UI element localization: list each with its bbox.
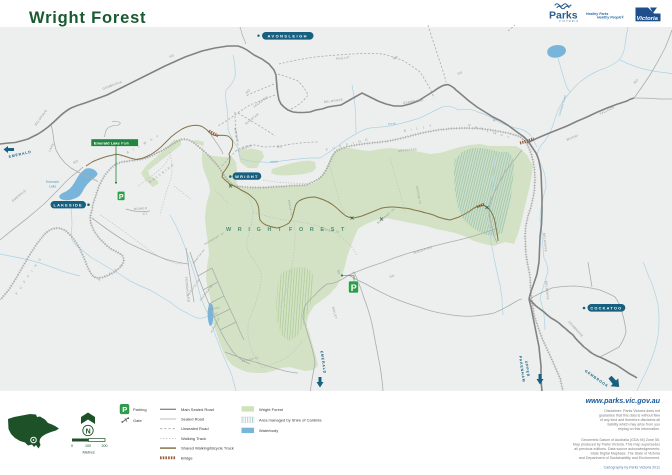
svg-text:P: P (119, 194, 124, 201)
svg-text:Unsealed Road: Unsealed Road (181, 426, 209, 431)
svg-text:State Digital Mapbase. The Sta: State Digital Mapbase. The State of Vict… (590, 452, 660, 456)
svg-text:Area managed by Shire of Cardi: Area managed by Shire of Cardinia (259, 418, 322, 423)
svg-text:0: 0 (71, 444, 73, 448)
svg-text:BOWER: BOWER (134, 206, 148, 211)
svg-text:WRIGHT: WRIGHT (235, 174, 259, 179)
svg-text:liability which may arise from: liability which may arise from you (607, 423, 660, 427)
svg-text:VICTORIA: VICTORIA (559, 20, 579, 23)
svg-text:Gate: Gate (133, 418, 142, 423)
svg-text:Cartography by Parks Victoria: Cartography by Parks Victoria 2011 (604, 466, 660, 470)
svg-text:Bridge: Bridge (181, 455, 193, 460)
svg-text:Lake: Lake (49, 185, 56, 189)
svg-text:Map produced by Parks Victoria: Map produced by Parks Victoria. This map… (573, 443, 660, 447)
svg-text:guarantee that this data is wi: guarantee that this data is without flaw (599, 414, 661, 418)
svg-text:and Department of Sustainabili: and Department of Sustainability and Env… (579, 456, 660, 460)
svg-text:Shared Walking/Bicycle Track: Shared Walking/Bicycle Track (181, 446, 234, 451)
svg-text:all previous editions. Data so: all previous editions. Data source ackno… (574, 447, 660, 451)
svg-text:RD: RD (277, 145, 283, 149)
svg-text:Victoria: Victoria (637, 16, 659, 22)
svg-text:Parking: Parking (133, 407, 147, 412)
svg-text:Wattle: Wattle (270, 159, 279, 164)
svg-text:Metres: Metres (83, 450, 95, 455)
svg-text:CT: CT (143, 212, 148, 216)
svg-text:Sealed Road: Sealed Road (181, 417, 204, 422)
svg-text:LAKESIDE: LAKESIDE (54, 203, 83, 208)
svg-text:P: P (351, 283, 357, 293)
svg-text:of any kind and therefore disc: of any kind and therefore disclaims all (600, 418, 660, 422)
svg-text:www.parks.vic.gov.au: www.parks.vic.gov.au (586, 396, 661, 405)
svg-text:Geocentric Datum of Australia: Geocentric Datum of Australia (GDA 94) Z… (581, 438, 660, 442)
svg-text:relying on this information.: relying on this information. (618, 427, 660, 431)
svg-text:N: N (86, 428, 91, 435)
svg-text:COCKATOO: COCKATOO (590, 306, 622, 311)
svg-text:Wright Forest: Wright Forest (29, 9, 146, 27)
svg-text:Main Sealed Road: Main Sealed Road (181, 407, 214, 412)
svg-text:Disclaimer: Parks Victoria doe: Disclaimer: Parks Victoria does not (604, 409, 660, 413)
svg-text:CT: CT (214, 311, 219, 316)
svg-text:100: 100 (85, 444, 91, 448)
svg-text:Creek: Creek (388, 121, 397, 126)
svg-text:Wright Forest: Wright Forest (259, 407, 284, 412)
svg-text:200: 200 (102, 444, 108, 448)
svg-text:Waterbody: Waterbody (259, 428, 278, 433)
svg-text:Walking Track: Walking Track (181, 436, 206, 441)
svg-text:P: P (122, 405, 127, 414)
svg-text:Healthy People®: Healthy People® (597, 16, 624, 20)
svg-text:Emerald: Emerald (46, 180, 59, 184)
svg-text:AVONSLEIGH: AVONSLEIGH (267, 33, 307, 38)
svg-text:Emerald Lake Park: Emerald Lake Park (94, 140, 129, 145)
